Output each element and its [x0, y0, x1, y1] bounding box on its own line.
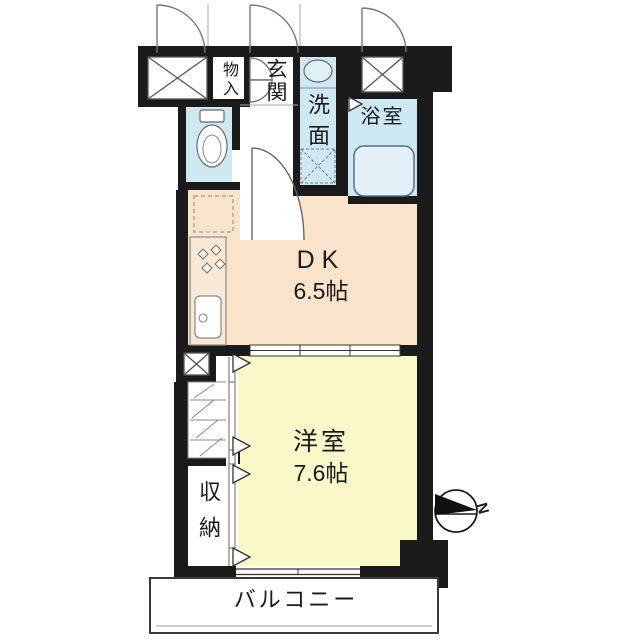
corridor-door2-arc	[362, 8, 406, 52]
wall-bottom-left	[174, 566, 236, 578]
label-storage-top: 物入	[220, 61, 236, 99]
toilet-door-opening	[232, 150, 240, 182]
label-dk: DK	[276, 248, 366, 273]
wall-dk-western-right	[400, 345, 417, 356]
label-bathroom: 浴室	[348, 107, 417, 127]
dk-western-sliding-door	[250, 345, 400, 356]
bathtub-fixture	[354, 146, 414, 196]
label-closet: 収納	[197, 480, 219, 552]
wall-bath-top	[348, 92, 417, 99]
balcony-window	[236, 566, 360, 578]
label-balcony: バルコニー	[206, 589, 386, 611]
label-western-room-size: 7.6帖	[266, 462, 376, 485]
wall-washroom-bottom	[293, 185, 348, 196]
compass	[435, 490, 477, 532]
wall-left-upper	[176, 190, 188, 345]
label-washroom: 洗面	[306, 93, 328, 155]
wall-elevator-divider	[207, 46, 213, 107]
label-dk-size: 6.5帖	[266, 280, 376, 303]
wall-elevator-left	[138, 46, 148, 107]
wall-right	[417, 92, 433, 544]
toilet-fixture	[197, 110, 227, 167]
wall-washroom-left	[293, 46, 300, 196]
label-western-room: 洋室	[266, 430, 376, 455]
wall-storage-right	[244, 46, 250, 107]
closet-track-strip	[226, 356, 238, 566]
wall-bath-bottom	[348, 196, 417, 204]
sink-faucet	[199, 314, 207, 322]
entrance-door-arc	[250, 5, 298, 53]
wall-top-right-block	[400, 46, 452, 92]
wall-washroom-bath	[336, 99, 348, 196]
floorplan-page: 物入 玄関 洗面 浴室 DK 6.5帖 洋室 7.6帖 収納 バルコニー N	[0, 0, 640, 640]
wall-left-lower	[174, 382, 188, 578]
corridor-door-arc	[157, 5, 205, 53]
label-entrance: 玄関	[265, 58, 286, 104]
